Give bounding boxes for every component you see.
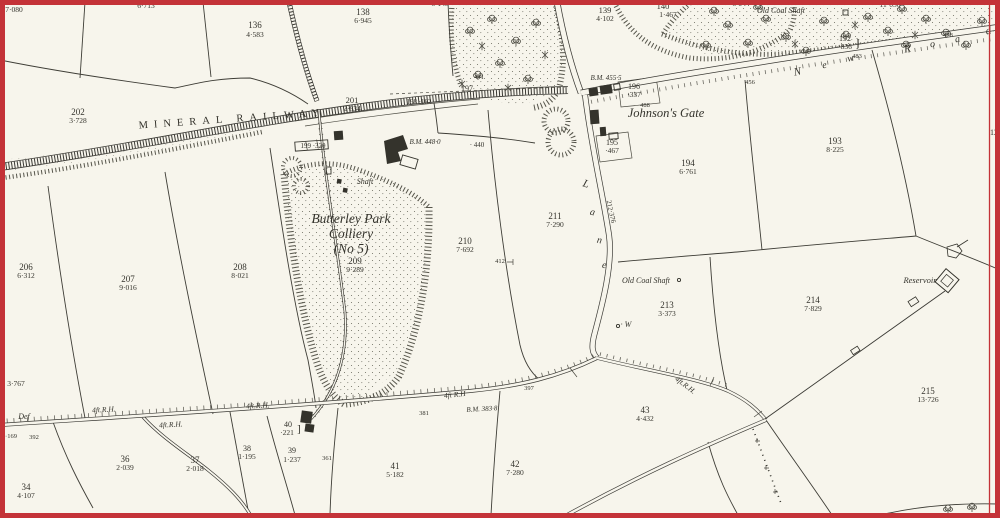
map-label: 9·289 [346,265,364,274]
map-label: 4ft.R.H. [159,419,183,429]
shaft-symbol [337,179,342,184]
map-label: ·169 [5,433,17,440]
map-label: · W [621,320,633,329]
map-label: · 440 [470,141,485,149]
map-label: (No 5) [334,241,369,256]
map-label: 136 [248,20,262,30]
map-label: 3·728 [69,116,87,125]
map-label: Shaft [357,177,374,186]
map-label: 4·102 [596,14,614,23]
map-label: 4·107 [17,491,35,500]
map-label: 6·312 [17,271,35,280]
map-label: 1·467 [659,10,677,19]
map-label: 8·021 [231,271,249,280]
map-label: B.M. 455·5 [590,74,622,82]
map-label: 9·016 [119,283,137,292]
map-label: ] [297,423,301,435]
map-label: 381 [419,410,429,417]
map-label: 198 ·182 [406,98,432,106]
map-label: 6·945 [354,16,372,25]
map-label: 4·583 [246,30,264,39]
map-label: 2·039 [116,463,134,472]
map-label: 392 [29,434,39,441]
map-label: 441 [474,74,484,81]
map-label: 397 [524,385,535,392]
map-label: Butterley Park [311,211,391,226]
colliery-building [334,131,344,141]
map-label: 197 [461,84,473,93]
map-label: 2·018 [186,464,204,473]
map-label: 39 [288,446,296,455]
map-label: 4ft.R.H. [246,400,270,410]
map-label: 2·834 [343,104,361,113]
map-label: 361 [322,455,332,462]
map-label: Colliery [329,226,373,241]
map-label: 412 [495,258,505,265]
map-label: Def [17,412,31,421]
map-label: 199 ·320 [300,142,326,150]
map-label: Old Coal Shaft [622,276,671,285]
plot40-building [304,423,314,432]
map-label: ·836 [838,42,852,51]
johnsons-gate-building [588,87,598,96]
map-label: Old Coal Shaft [757,6,806,15]
map-label: B.M. 448·0 [409,138,441,146]
map-label: ·221 [280,428,294,437]
johnsons-gate-building [590,110,600,125]
shaft-symbol [343,188,348,193]
plot40-building [300,410,313,423]
map-label: 4ft.R.H. [92,404,116,414]
map-label: 1·195 [238,452,256,461]
map-canvas: 7·0806·7131364·5831386·9456·1481394·1021… [0,0,1000,518]
map-label: 483 [852,53,862,60]
map-label: 478 [943,32,953,39]
map-label: 13·726 [917,395,938,404]
map-label: } [855,35,861,50]
map-label: ·467 [605,146,619,155]
map-label: Reservoir [902,275,937,285]
map-label: ·337 [627,90,641,99]
map-label: 4·432 [636,414,654,423]
map-label: 7·829 [804,304,822,313]
johnsons-gate-building [600,84,613,95]
map-label: 7·290 [546,220,564,229]
map-label: 8·225 [826,145,844,154]
map-label: 5·182 [386,470,404,479]
map-label: 7·080 [5,5,23,14]
map-label: 7·692 [456,245,474,254]
map-label: 6·761 [679,167,697,176]
map-sheet: 7·0806·7131364·5831386·9456·1481394·1021… [0,0,1000,518]
map-label: 3·373 [658,309,676,318]
map-label: 456 [745,79,756,86]
map-label: 7·280 [506,468,524,477]
map-label: B.M. 383·8 [466,404,498,414]
map-label: 3·767 [7,379,25,388]
johnsons-gate-building [600,127,607,136]
map-label: Johnson's Gate [628,106,705,120]
map-label: 1·237 [283,455,301,464]
